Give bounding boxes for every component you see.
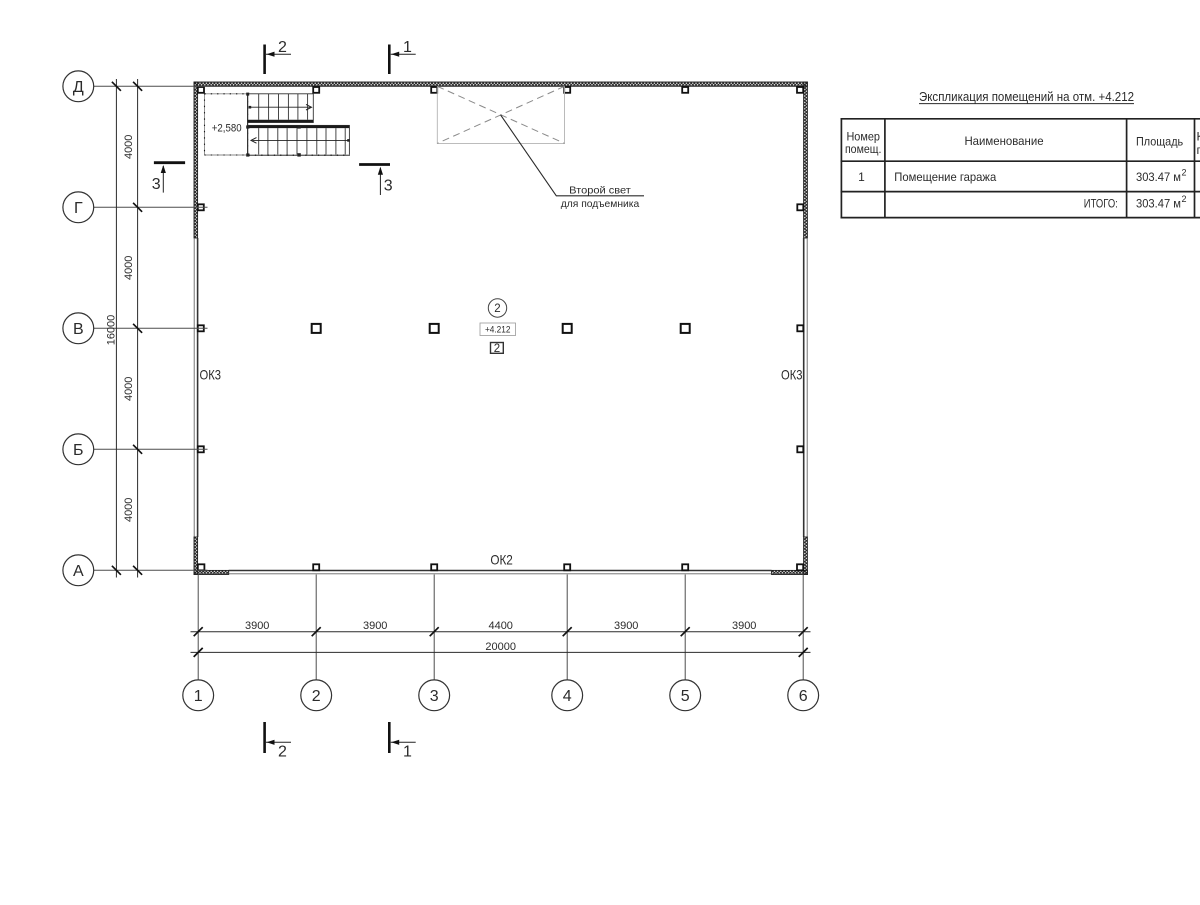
svg-text:3900: 3900	[614, 620, 638, 632]
svg-text:Б: Б	[73, 442, 84, 459]
svg-text:4000: 4000	[123, 377, 135, 401]
svg-text:для подъемника: для подъемника	[561, 198, 640, 210]
svg-text:3900: 3900	[245, 620, 269, 632]
svg-text:Второй свет: Второй свет	[569, 184, 631, 196]
svg-text:ИТОГО:: ИТОГО:	[1084, 196, 1118, 210]
svg-text:303.47 м: 303.47 м	[1136, 196, 1181, 210]
svg-text:2: 2	[278, 744, 287, 761]
svg-text:ОК3: ОК3	[781, 367, 803, 383]
svg-text:4: 4	[563, 688, 572, 705]
svg-text:6: 6	[799, 688, 808, 705]
svg-text:2: 2	[1182, 194, 1187, 204]
svg-text:1: 1	[403, 744, 412, 761]
svg-text:Д: Д	[73, 79, 84, 96]
svg-text:4000: 4000	[123, 135, 135, 159]
svg-text:ОК2: ОК2	[490, 552, 513, 568]
svg-text:ОК3: ОК3	[200, 367, 222, 383]
svg-text:А: А	[73, 563, 84, 580]
svg-text:3: 3	[152, 176, 161, 193]
svg-text:помещ.: помещ.	[845, 142, 882, 156]
svg-text:4000: 4000	[123, 498, 135, 522]
svg-text:Экспликация помещений на отм.: Экспликация помещений на отм. +4.212	[919, 89, 1134, 104]
svg-text:Площадь: Площадь	[1136, 135, 1183, 149]
svg-text:303.47 м: 303.47 м	[1136, 170, 1181, 184]
svg-text:В: В	[73, 321, 84, 338]
svg-text:Наименование: Наименование	[964, 134, 1043, 148]
svg-text:2: 2	[1182, 168, 1187, 178]
svg-text:+2,580: +2,580	[212, 122, 242, 134]
svg-text:1: 1	[858, 170, 865, 184]
svg-text:16000: 16000	[106, 315, 118, 346]
svg-text:5: 5	[681, 688, 690, 705]
svg-text:3: 3	[430, 688, 439, 705]
svg-text:3900: 3900	[732, 620, 756, 632]
svg-text:4000: 4000	[123, 256, 135, 280]
svg-text:2: 2	[494, 303, 500, 315]
svg-text:20000: 20000	[485, 641, 516, 653]
svg-text:Кат.: Кат.	[1197, 129, 1200, 143]
svg-text:4400: 4400	[488, 620, 512, 632]
svg-text:2: 2	[312, 688, 321, 705]
svg-text:пом.: пом.	[1197, 143, 1200, 157]
svg-text:Г: Г	[74, 200, 83, 217]
svg-text:Помещение гаража: Помещение гаража	[894, 170, 996, 184]
svg-text:3900: 3900	[363, 620, 387, 632]
svg-text:1: 1	[194, 688, 203, 705]
svg-text:2: 2	[278, 39, 287, 56]
svg-text:3: 3	[384, 178, 393, 195]
svg-text:2: 2	[494, 343, 500, 355]
svg-text:+4.212: +4.212	[485, 324, 511, 335]
svg-text:1: 1	[403, 39, 412, 56]
